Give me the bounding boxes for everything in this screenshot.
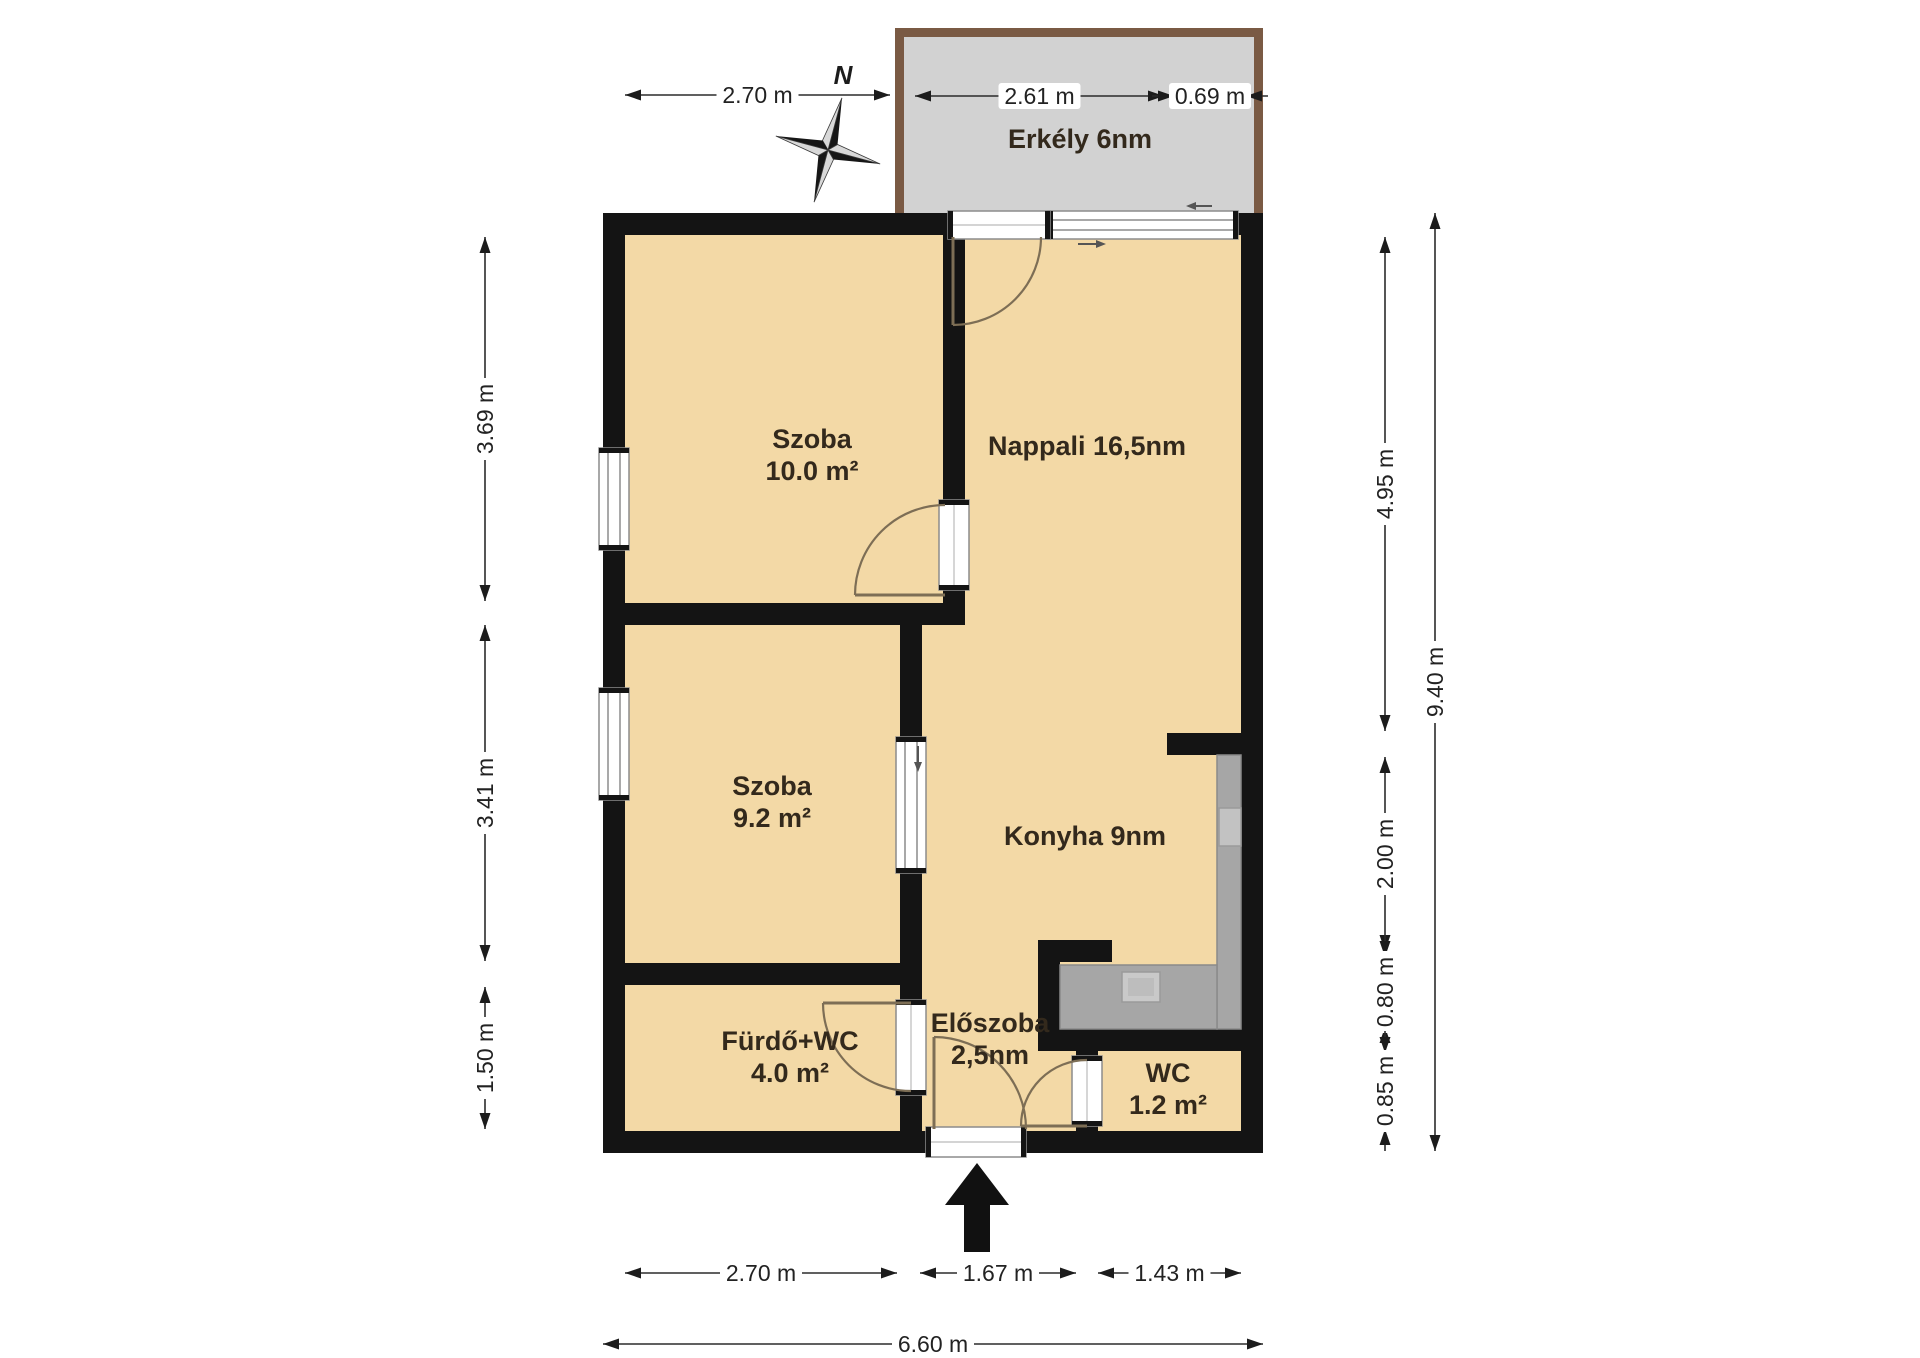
window-cap xyxy=(599,448,629,453)
dimension-label: 4.95 m xyxy=(1372,449,1398,519)
wall xyxy=(625,963,922,985)
dimension-label-group: 1.43 m xyxy=(1129,1260,1211,1286)
room-label-furdo-wc: 4.0 m² xyxy=(751,1058,829,1088)
dimension-label-group: 1.67 m xyxy=(957,1260,1039,1286)
dimension-label: 1.50 m xyxy=(472,1023,498,1093)
window xyxy=(599,688,629,800)
dimension: 9.40 m xyxy=(1422,213,1448,1151)
balcony xyxy=(895,28,1263,213)
dimension-arrowhead xyxy=(480,625,491,641)
dimension-label-group: 2.70 m xyxy=(717,82,799,108)
dimension-label: 0.80 m xyxy=(1372,957,1398,1027)
dimension-label-group: 3.41 m xyxy=(472,752,498,834)
room-label-wc: 1.2 m² xyxy=(1129,1090,1207,1120)
room-label-nappali: Nappali 16,5nm xyxy=(988,431,1186,461)
door-frame-cap xyxy=(948,211,953,239)
dimension: 0.69 m xyxy=(1152,83,1268,109)
window-cap xyxy=(599,795,629,800)
dimension-label-group: 3.69 m xyxy=(472,378,498,460)
dimension-label-group: 0.69 m xyxy=(1169,83,1251,109)
dimension: 1.50 m xyxy=(472,987,498,1129)
dimension-label: 2.61 m xyxy=(1004,83,1074,109)
kitchen-hob xyxy=(1219,808,1241,846)
window xyxy=(896,737,926,873)
dimension: 3.41 m xyxy=(472,625,498,961)
dimension-arrowhead xyxy=(1380,715,1391,731)
dimension-arrowhead xyxy=(480,987,491,1003)
dimension-label: 6.60 m xyxy=(898,1331,968,1357)
floor-plan-page: Szoba10.0 m²Szoba9.2 m²Fürdő+WC4.0 m²Nap… xyxy=(0,0,1920,1358)
dimension-arrowhead xyxy=(1247,1339,1263,1350)
dimension: 0.85 m xyxy=(1372,1031,1398,1151)
door-frame-cap xyxy=(1021,1127,1026,1157)
window xyxy=(599,448,629,550)
kitchen-sink-basin xyxy=(1128,978,1154,996)
dimension-arrowhead xyxy=(1060,1268,1076,1279)
dimension-arrowhead xyxy=(480,1113,491,1129)
entrance-arrow-icon xyxy=(945,1163,1009,1252)
dimension-arrowhead xyxy=(480,945,491,961)
room-label-szoba-1: Szoba xyxy=(772,424,852,454)
dimension-label: 1.67 m xyxy=(963,1260,1033,1286)
room-label-szoba-2: 9.2 m² xyxy=(733,803,811,833)
dimension: 2.00 m xyxy=(1372,757,1398,951)
dimension-arrowhead xyxy=(603,1339,619,1350)
window-cap xyxy=(896,737,926,742)
dimension-arrowhead xyxy=(625,90,641,101)
room-label-szoba-2: Szoba xyxy=(732,771,812,801)
dimension-label-group: 2.61 m xyxy=(999,83,1081,109)
dimension-arrowhead xyxy=(1225,1268,1241,1279)
wall xyxy=(1038,940,1112,962)
window-cap xyxy=(599,688,629,693)
dimension-arrowhead xyxy=(920,1268,936,1279)
dimension-arrowhead xyxy=(480,237,491,253)
dimension-label-group: 6.60 m xyxy=(892,1331,974,1357)
room-label-szoba-1: 10.0 m² xyxy=(765,456,858,486)
window-cap xyxy=(599,545,629,550)
dimension-label-group: 2.00 m xyxy=(1372,813,1398,895)
room-label-erkely: Erkély 6nm xyxy=(1008,124,1152,154)
dimension-label: 3.69 m xyxy=(472,384,498,454)
room-label-konyha: Konyha 9nm xyxy=(1004,821,1166,851)
dimension-label: 3.41 m xyxy=(472,758,498,828)
dimension-arrowhead xyxy=(625,1268,641,1279)
dimension-label: 2.00 m xyxy=(1372,819,1398,889)
door-frame-cap xyxy=(939,585,969,590)
dimension: 3.69 m xyxy=(472,237,498,601)
compass-north-label: N xyxy=(834,60,854,90)
dimension-label-group: 9.40 m xyxy=(1422,641,1448,723)
floor-plan-canvas: Szoba10.0 m²Szoba9.2 m²Fürdő+WC4.0 m²Nap… xyxy=(0,0,1920,1358)
dimension-arrowhead xyxy=(1430,1135,1441,1151)
wall xyxy=(1167,733,1241,755)
wall xyxy=(1241,213,1263,1153)
counter xyxy=(1217,755,1241,1029)
dimension: 1.67 m xyxy=(920,1260,1076,1286)
dimension-label: 9.40 m xyxy=(1422,647,1448,717)
window xyxy=(1048,211,1238,239)
dimension: 4.95 m xyxy=(1372,237,1398,731)
dimension-label-group: 1.50 m xyxy=(472,1017,498,1099)
dimension-label-group: 0.85 m xyxy=(1372,1050,1398,1132)
dimension-label: 1.43 m xyxy=(1134,1260,1204,1286)
dimension-arrowhead xyxy=(881,1268,897,1279)
dimension-label: 0.69 m xyxy=(1175,83,1245,109)
dimension-label: 0.85 m xyxy=(1372,1056,1398,1126)
wall xyxy=(603,213,625,1153)
room-label-wc: WC xyxy=(1146,1058,1191,1088)
dimension-label-group: 0.80 m xyxy=(1372,951,1398,1033)
dimension-label-group: 2.70 m xyxy=(720,1260,802,1286)
dimension-arrowhead xyxy=(480,585,491,601)
dimension-arrowhead xyxy=(1098,1268,1114,1279)
window-cap xyxy=(1233,211,1238,239)
dimension-arrowhead xyxy=(1430,213,1441,229)
dimension-arrowhead xyxy=(1380,757,1391,773)
dimension-label-group: 4.95 m xyxy=(1372,443,1398,525)
room-label-furdo-wc: Fürdő+WC xyxy=(721,1026,858,1056)
room-label-eloszoba: 2,5nm xyxy=(951,1040,1029,1070)
dimension-arrowhead xyxy=(1380,237,1391,253)
door-frame-cap xyxy=(1045,211,1050,239)
window-cap xyxy=(896,868,926,873)
wall xyxy=(1038,1029,1263,1051)
room-label-eloszoba: Előszoba xyxy=(931,1008,1051,1038)
dimension-label: 2.70 m xyxy=(722,82,792,108)
dimension: 2.70 m xyxy=(625,1260,897,1286)
dimension: 1.43 m xyxy=(1098,1260,1241,1286)
dimension-arrowhead xyxy=(874,90,890,101)
door-frame-cap xyxy=(926,1127,931,1157)
dimension: 6.60 m xyxy=(603,1331,1263,1357)
dimension-label: 2.70 m xyxy=(726,1260,796,1286)
